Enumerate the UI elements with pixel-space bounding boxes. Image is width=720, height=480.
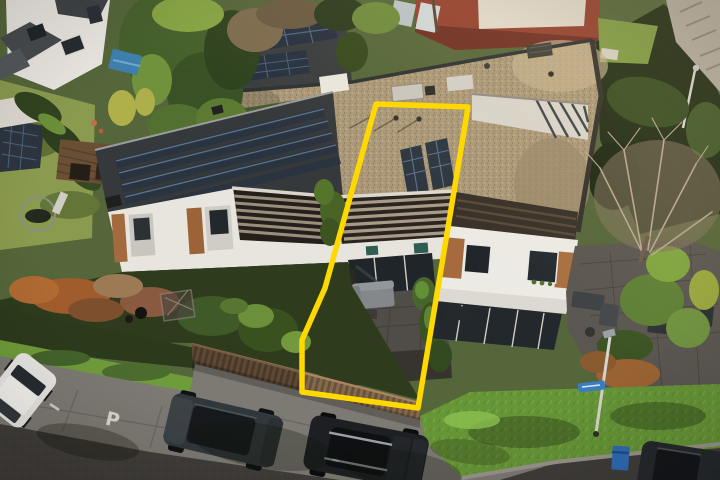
aerial-photo: P: [0, 0, 720, 480]
vignette: [0, 0, 720, 480]
aerial-photo-frame: P: [0, 0, 720, 480]
